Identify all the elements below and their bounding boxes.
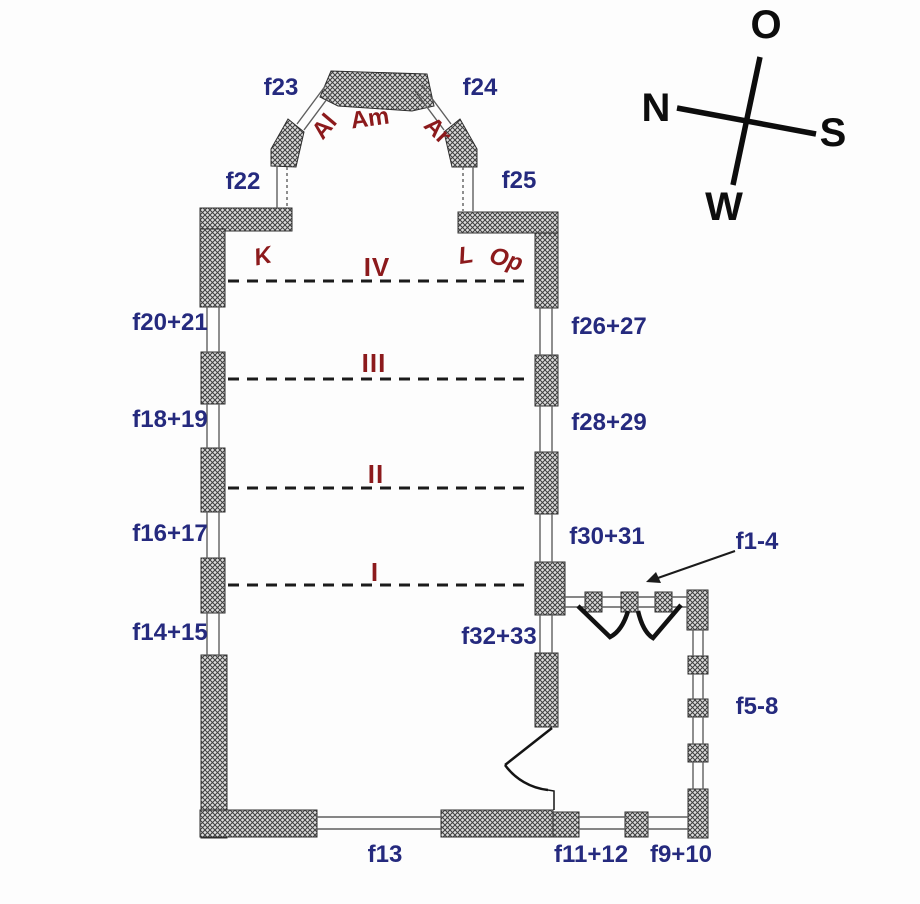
window-label-f13: f13 — [368, 843, 403, 867]
bay-division-lines — [228, 281, 531, 585]
window-label-f25: f25 — [502, 169, 537, 193]
window-label-f16-17: f16+17 — [132, 522, 207, 546]
compass-label-west: W — [705, 187, 743, 227]
annex-window-arrow — [646, 551, 735, 583]
bay-label-iv: IV — [364, 254, 391, 280]
west-wall — [200, 810, 648, 837]
bay-label-ii: II — [368, 461, 384, 487]
window-openings — [207, 85, 703, 829]
compass-label-north: N — [642, 88, 671, 128]
window-label-f28-29: f28+29 — [571, 411, 646, 435]
window-label-f5-8: f5-8 — [736, 695, 779, 719]
annex-wall — [585, 590, 708, 838]
compass-label-south: S — [820, 113, 847, 153]
window-label-f22: f22 — [226, 170, 261, 194]
window-label-f30-31: f30+31 — [569, 525, 644, 549]
window-label-f23: f23 — [264, 76, 299, 100]
window-label-f1-4: f1-4 — [736, 530, 779, 554]
entrance-door-swing — [505, 728, 554, 810]
compass-label-east: O — [750, 5, 781, 45]
window-label-f11-12: f11+12 — [554, 843, 628, 867]
window-label-f18-19: f18+19 — [132, 408, 207, 432]
floor-plan-canvas: f23 f24 f22 f25 f20+21 f18+19 f16+17 f14… — [0, 0, 920, 904]
window-label-f32-33: f32+33 — [461, 625, 536, 649]
compass-rose — [677, 57, 816, 185]
zone-label-am: Am — [349, 104, 391, 133]
zone-label-l: L — [457, 243, 475, 269]
window-label-f24: f24 — [463, 76, 498, 100]
window-label-f26-27: f26+27 — [571, 315, 646, 339]
floor-plan-drawing — [0, 0, 920, 904]
window-label-f14-15: f14+15 — [132, 621, 207, 645]
bay-label-iii: III — [362, 350, 387, 376]
window-label-f9-10: f9+10 — [650, 843, 712, 867]
north-wall — [200, 208, 292, 838]
bay-label-i: I — [371, 559, 379, 585]
window-label-f20-21: f20+21 — [132, 311, 207, 335]
